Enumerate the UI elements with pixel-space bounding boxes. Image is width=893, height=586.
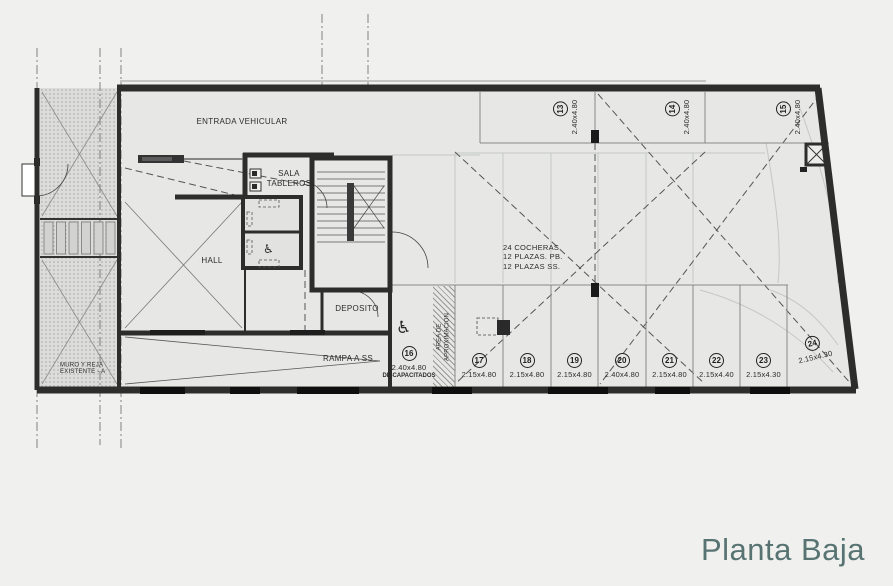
spot-number-badge: 21 xyxy=(662,353,677,368)
sala-tableros-label: SALA TABLEROS xyxy=(267,169,312,189)
spot-number-badge: 16 xyxy=(402,346,417,361)
parking-spot-22: 22 2.15x4.40 xyxy=(693,285,740,388)
parking-spot-24: 24 2.15x4.30 xyxy=(782,285,844,388)
spot-number-badge: 18 xyxy=(520,353,535,368)
spot-dimension: 2.15x4.80 xyxy=(510,370,545,379)
sala-tableros-line1: SALA xyxy=(267,169,312,179)
floorplan-sheet: ENTRADA VEHICULAR SALA TABLEROS HALL DEP… xyxy=(0,0,893,586)
spot-dimension: 2.15x4.80 xyxy=(652,370,687,379)
spot-number-badge: 13 xyxy=(553,102,568,117)
sheet-title: Planta Baja xyxy=(701,532,865,568)
cocheras-note: 24 COCHERAS 12 PLAZAS. PB. 12 PLAZAS SS. xyxy=(503,243,563,271)
parking-spot-15: 15 2.40x4.80 xyxy=(776,100,802,135)
spot-number-badge: 14 xyxy=(665,102,680,117)
spot-dimension: 2.40x4.80 xyxy=(605,370,640,379)
spot-dimension: 2.15x4.30 xyxy=(746,370,781,379)
parking-spot-19: 19 2.15x4.80 xyxy=(551,285,598,388)
sala-tableros-line2: TABLEROS xyxy=(267,179,312,189)
spot-dimension: 2.15x4.30 xyxy=(797,349,833,366)
spot-dimension: 2.15x4.80 xyxy=(557,370,592,379)
muro-line1: MURO Y REJA xyxy=(60,362,105,369)
existing-structure-strip xyxy=(40,88,119,389)
spot-number-badge: 17 xyxy=(472,353,487,368)
spot-dimension: 2.15x4.80 xyxy=(462,370,497,379)
area-aprox-line2: APROXIMACION xyxy=(444,313,452,361)
parking-spot-14: 14 2.40x4.80 xyxy=(665,100,691,135)
parking-spot-13: 13 2.40x4.80 xyxy=(553,100,579,135)
spot-dimension: 2.40x4.80 xyxy=(392,363,427,372)
spot-dimension: 2.15x4.40 xyxy=(699,370,734,379)
spot-dimension: 2.40x4.80 xyxy=(682,100,691,135)
spot-number-badge: 24 xyxy=(803,334,821,352)
parking-spot-20: 20 2.40x4.80 xyxy=(598,285,646,388)
spot-number-badge: 22 xyxy=(709,353,724,368)
wheelchair-icon: ♿ xyxy=(263,242,274,256)
cocheras-line1: 24 COCHERAS xyxy=(503,243,563,252)
parking-spot-18: 18 2.15x4.80 xyxy=(503,285,551,388)
spot-note: DISCAPACITADOS xyxy=(382,373,435,379)
cocheras-line3: 12 PLAZAS SS. xyxy=(503,262,563,271)
parking-spot-17: 17 2.15x4.80 xyxy=(455,285,503,388)
parking-spot-23: 23 2.15x4.30 xyxy=(740,285,787,388)
cocheras-line2: 12 PLAZAS. PB. xyxy=(503,252,563,261)
entrada-vehicular-label: ENTRADA VEHICULAR xyxy=(197,117,288,127)
rampa-ss-label: RAMPA A SS xyxy=(323,354,373,364)
muro-line2: EXISTENTE - A xyxy=(60,369,105,376)
spot-number-badge: 19 xyxy=(567,353,582,368)
spot-number-badge: 15 xyxy=(776,102,791,117)
area-aprox-line1: AREA DE xyxy=(437,313,445,361)
parking-spot-21: 21 2.15x4.80 xyxy=(646,285,693,388)
spot-dimension: 2.40x4.80 xyxy=(793,100,802,135)
area-aproximacion-label: AREA DE APROXIMACION xyxy=(437,313,452,361)
spot-number-badge: 20 xyxy=(615,353,630,368)
spot-24-rotated-label: 24 2.15x4.30 xyxy=(793,332,833,365)
deposito-label: DEPOSITO xyxy=(335,304,379,314)
spot-number-badge: 23 xyxy=(756,353,771,368)
spot-dimension: 2.40x4.80 xyxy=(570,100,579,135)
parking-spot-16: 16 2.40x4.80 DISCAPACITADOS xyxy=(385,285,433,388)
muro-existente-label: MURO Y REJA EXISTENTE - A xyxy=(60,362,105,376)
hall-label: HALL xyxy=(201,256,222,266)
